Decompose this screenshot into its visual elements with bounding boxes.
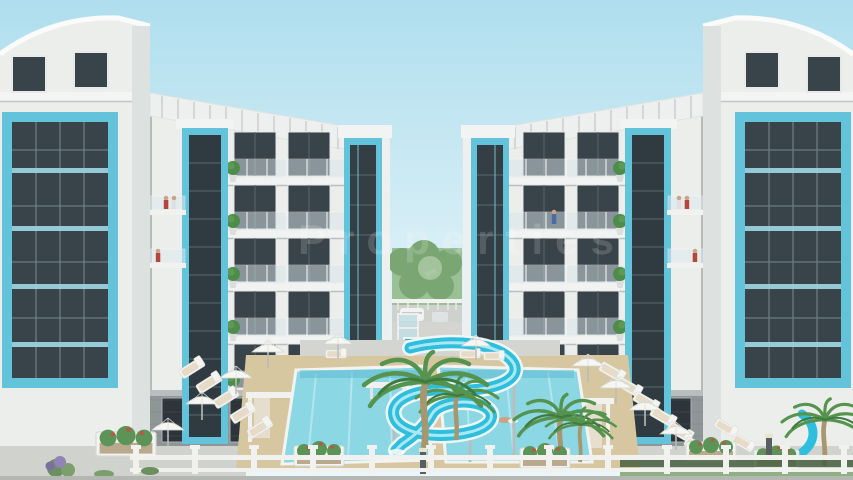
planter-box [96,426,156,456]
white-car [432,312,448,322]
planter-box [294,441,344,466]
ground-shadow [0,476,853,480]
scene-svg: Properties [0,0,853,480]
slide-splash [389,449,405,455]
architectural-render: Properties [0,0,853,480]
watermark-text: Properties [298,216,626,263]
